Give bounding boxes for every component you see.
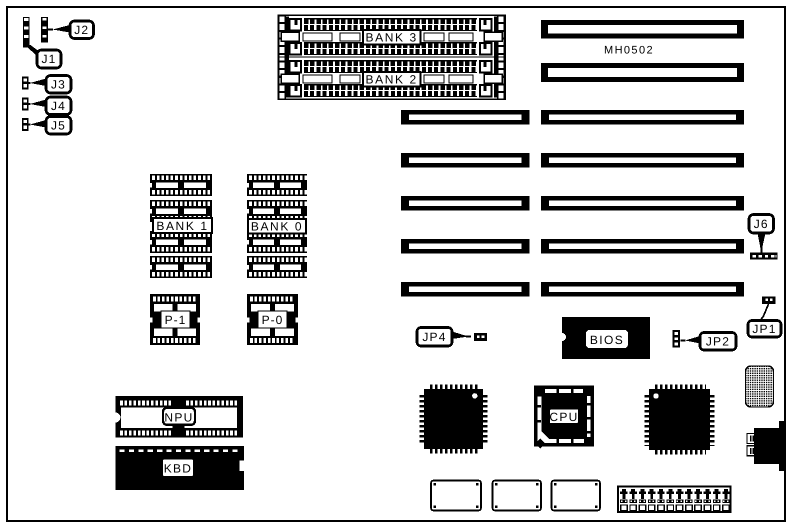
svg-text:J2: J2 <box>74 23 89 37</box>
svg-text:J4: J4 <box>51 99 66 113</box>
svg-text:BIOS: BIOS <box>590 333 624 347</box>
svg-text:J1: J1 <box>41 52 56 66</box>
svg-text:JP1: JP1 <box>752 322 776 336</box>
svg-text:MH0502: MH0502 <box>604 45 654 57</box>
svg-text:BANK 3: BANK 3 <box>366 31 418 45</box>
svg-text:P-1: P-1 <box>165 313 187 327</box>
svg-text:CPU: CPU <box>549 410 578 424</box>
svg-text:JP4: JP4 <box>422 330 446 344</box>
svg-text:P-0: P-0 <box>262 313 284 327</box>
svg-text:BANK 1: BANK 1 <box>156 219 208 233</box>
svg-text:J6: J6 <box>754 217 769 231</box>
svg-text:J5: J5 <box>51 118 66 132</box>
svg-text:BANK 0: BANK 0 <box>251 220 303 234</box>
svg-text:J3: J3 <box>51 77 66 91</box>
svg-text:NPU: NPU <box>164 410 193 424</box>
svg-text:JP2: JP2 <box>706 334 730 348</box>
svg-text:BANK 2: BANK 2 <box>366 73 418 87</box>
svg-text:KBD: KBD <box>164 462 193 476</box>
